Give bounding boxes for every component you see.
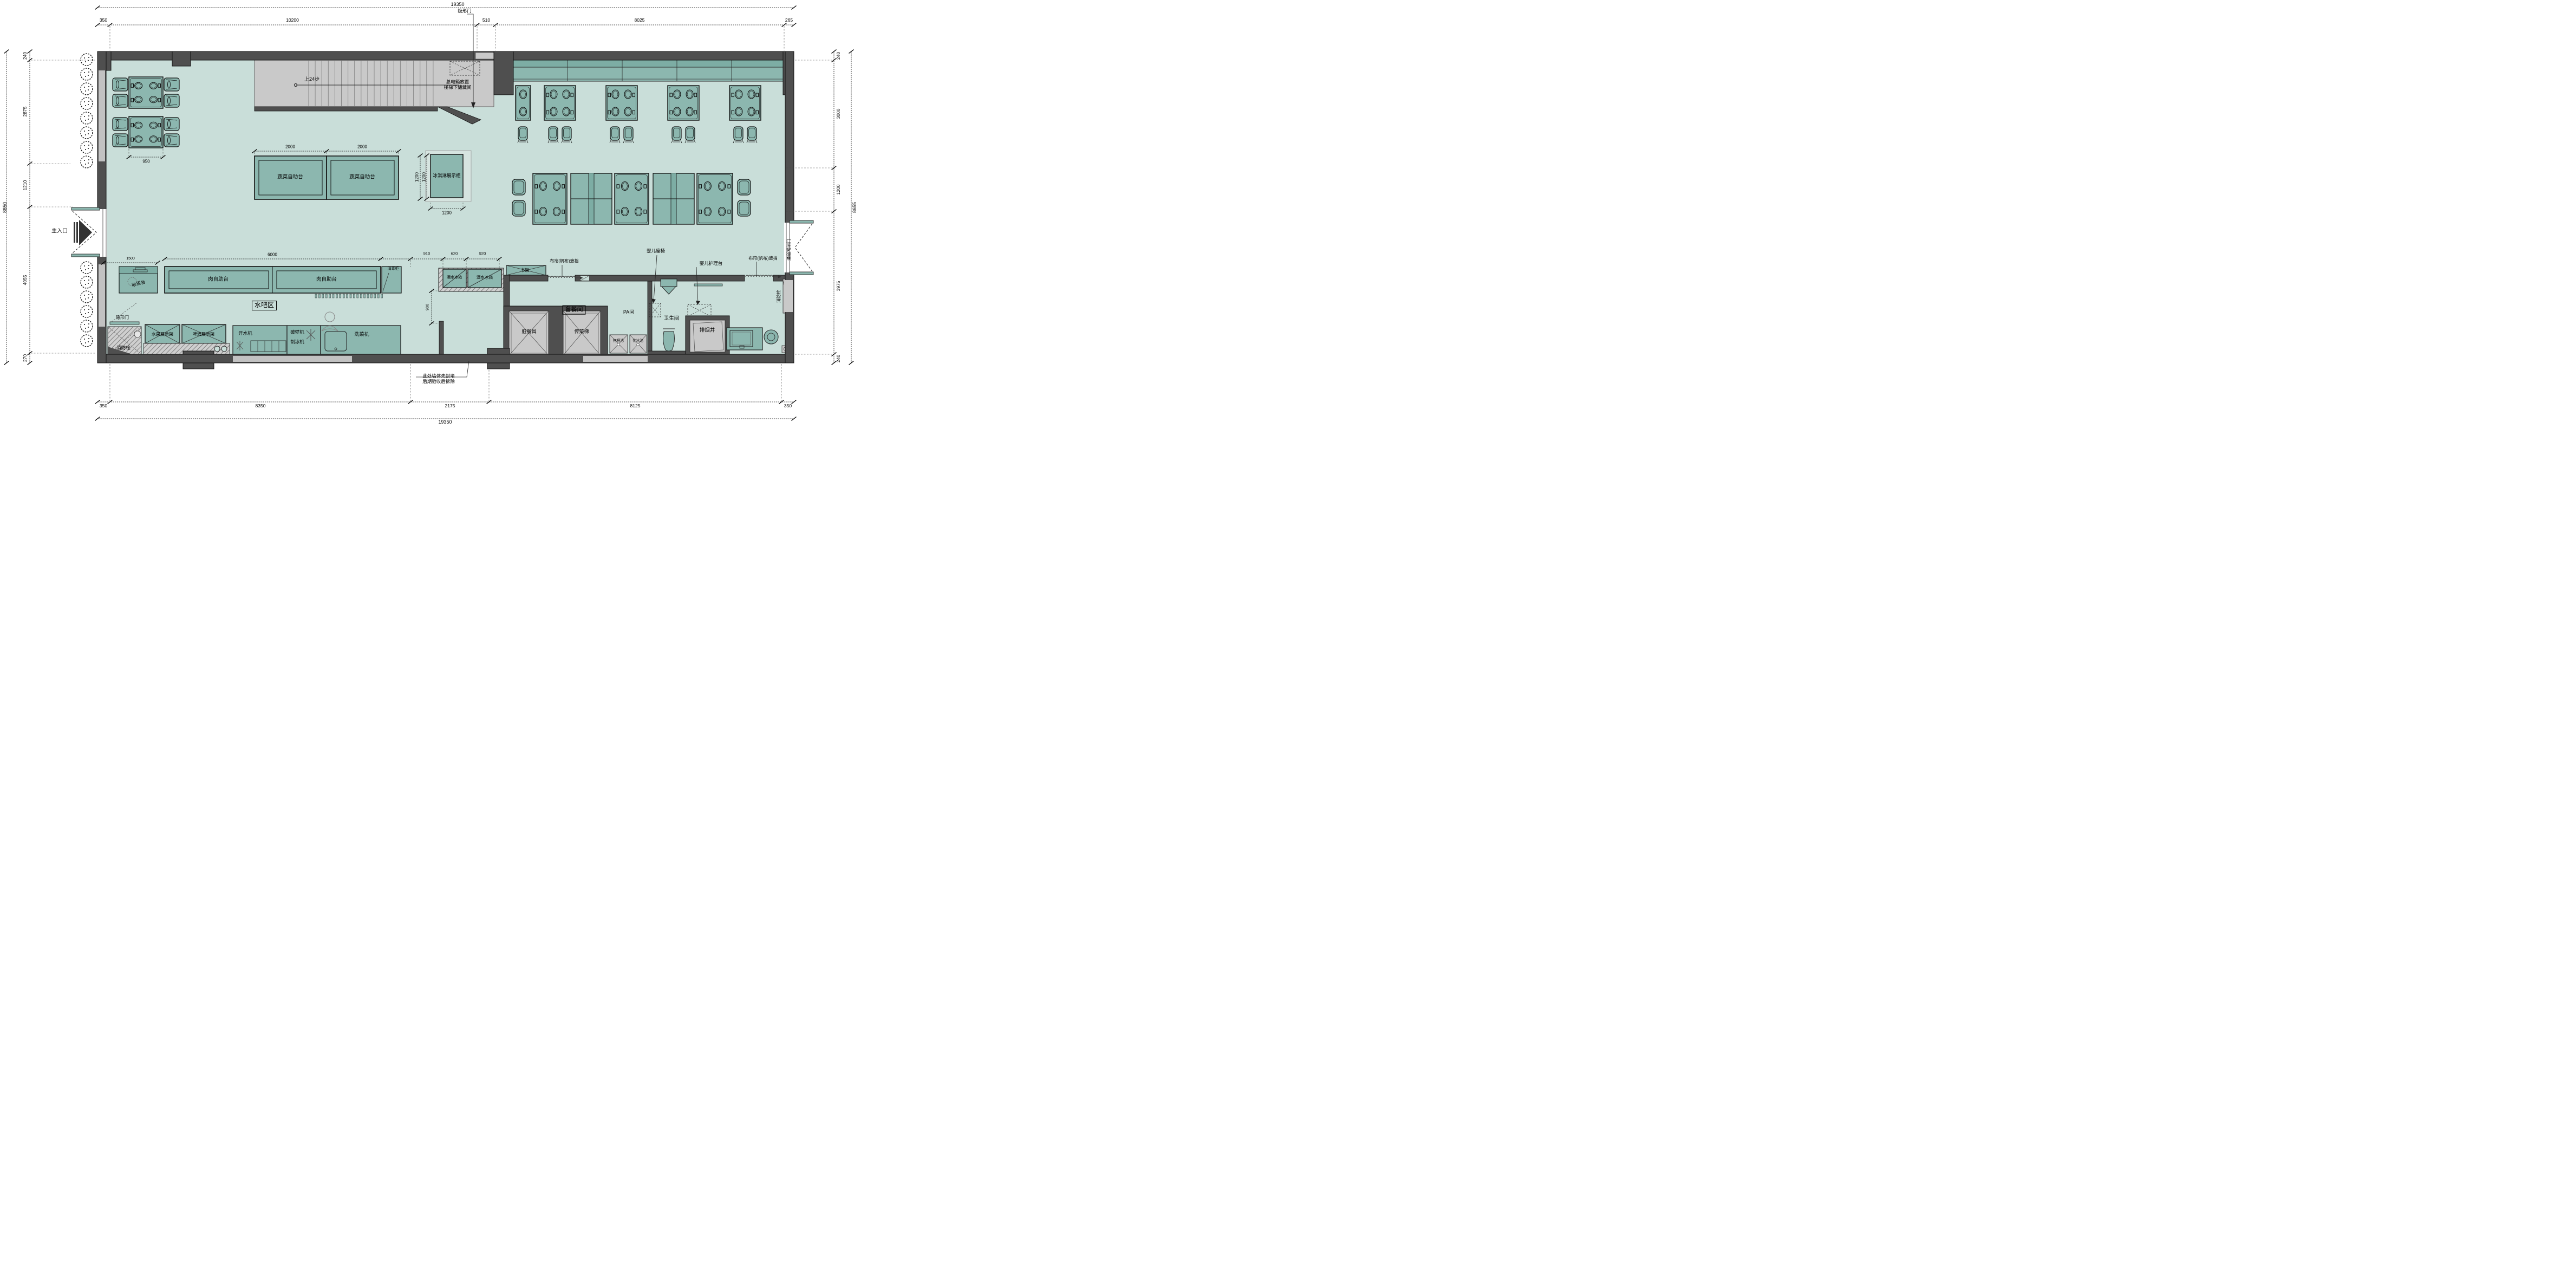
mop-sink-label: 拖把池 (613, 339, 624, 342)
blender-label: 破壁机 (290, 330, 304, 335)
beer-rack-label: 啤酒展示架 (193, 332, 214, 336)
stairs-up-label: 上24步 (304, 76, 319, 82)
dim-top-8025-label: 8025 (635, 18, 645, 23)
hidden-door-top-label: 隐形门 (458, 9, 472, 14)
toilet-room-label: 卫生间 (664, 316, 680, 322)
dim-920-label: 920 (479, 252, 486, 257)
dim-2000-b-label: 2000 (357, 144, 367, 149)
baby-care-shelf (694, 284, 722, 286)
dirty-dishes-label: 脏餐具 (521, 329, 536, 334)
tree-icon (81, 320, 93, 332)
dim-right-240a-label: 240 (836, 52, 842, 60)
tree-icon (81, 291, 93, 303)
door-leaf (790, 220, 813, 223)
tree-icon (81, 335, 93, 347)
tree-icon (81, 262, 93, 274)
banquette-bench (513, 60, 786, 81)
curtain-mid-label: 布帘(帆布)遮挡 (550, 258, 578, 263)
pa-room-label: PA间 (623, 309, 634, 315)
dim-bot-8350-label: 8350 (256, 404, 266, 409)
meat-buffet-2-label: 肉自助台 (316, 277, 337, 283)
veg-washer-box (321, 326, 401, 354)
tree-icon (81, 306, 93, 317)
dim-1200-v1-label: 1200 (414, 172, 419, 182)
dim-left-1210-label: 1210 (23, 180, 28, 191)
disinfect-cabinet-label: 消毒柜 (388, 267, 399, 271)
water-bar-zone-label: 水吧区 (252, 301, 277, 310)
tree-icon (81, 127, 93, 139)
dim-6000-label: 6000 (268, 252, 277, 257)
entrance-arrow-icon (74, 222, 75, 243)
toilet-icon (663, 332, 675, 351)
dim-top-10200-label: 10200 (286, 18, 299, 23)
floor-plan-drawing (0, 0, 859, 427)
dim-left-4055-label: 4055 (23, 275, 28, 285)
dim-bot-350b-label: 350 (784, 404, 792, 409)
tree-icon (81, 112, 93, 124)
baby-seat-label: 婴儿座椅 (647, 249, 665, 254)
passage-door-label: 通道常闭门 (786, 239, 791, 261)
dim-910-label: 910 (423, 252, 431, 257)
tree-icon (81, 68, 93, 80)
food-lift-label: 传菜梯 (574, 329, 589, 334)
dim-right-240b-label: 240 (836, 355, 842, 362)
hidden-door-leaf (110, 322, 139, 324)
tree-icon (81, 83, 93, 95)
veg-washer-label: 洗菜机 (354, 332, 369, 337)
veg-buffet-1-label: 蔬菜自助台 (277, 175, 303, 181)
veg-buffet-counters (255, 156, 399, 199)
fire-hydrant-right-label: 消防栓 (776, 290, 781, 303)
dim-1200-ice-label: 1200 (442, 210, 452, 215)
drink-fridge-2-label: 酒水冰箱 (477, 276, 493, 281)
dim-bot-8125-label: 8125 (630, 404, 641, 409)
dim-1500-label: 1500 (126, 257, 135, 261)
dim-left-270-label: 270 (23, 354, 28, 362)
urinal-icon (661, 279, 677, 287)
dim-620-label: 620 (451, 252, 458, 257)
ice-melt-sink-label: 化冰池 (632, 339, 643, 342)
floor-plan: 19350350102005108025265隐形门上24步总电箱放置 楼梯下储… (0, 0, 859, 427)
tree-icon (81, 98, 93, 109)
dim-bot-350a-label: 350 (100, 404, 107, 409)
window-band (99, 264, 105, 327)
round-sink-icon (764, 330, 778, 344)
electric-note-label: 总电箱放置 楼梯下储藏间 (444, 80, 471, 90)
dim-top-overall-label: 19350 (451, 2, 464, 7)
dim-900-label: 900 (426, 304, 431, 311)
street-trees (81, 54, 93, 347)
dim-2000-a-label: 2000 (285, 144, 295, 149)
dim-right-3975-label: 3975 (836, 281, 842, 291)
dim-bot-overall-label: 19350 (438, 419, 452, 425)
wall-note-label: 此处墙体先封堵 后期验收后拆除 (422, 374, 455, 385)
dim-950-label: 950 (142, 159, 149, 164)
dim-top-350-label: 350 (100, 18, 107, 23)
dim-left-240-label: 240 (23, 52, 28, 60)
dim-top-265-label: 265 (785, 18, 793, 23)
dim-right-8655-label: 8655 (852, 202, 857, 213)
main-entrance-label: 主入口 (51, 228, 68, 235)
stub-partition (439, 321, 444, 355)
veg-buffet-2-label: 蔬菜自助台 (349, 175, 375, 181)
dim-bot-2175-label: 2175 (445, 404, 455, 409)
hidden-door-left-label: 隐形门 (116, 315, 129, 320)
ice-cream-display-label: 冰淇淋展示柜 (433, 173, 460, 179)
drink-fridge-1-label: 酒水冰箱 (447, 276, 462, 280)
dim-left-8650-label: 8650 (2, 202, 8, 213)
curtain-right-label: 布帘(帆布)遮挡 (748, 256, 777, 261)
baby-care-table-label: 婴儿护理台 (700, 261, 723, 267)
tree-icon (81, 141, 93, 153)
smoke-shaft-label: 排烟井 (700, 328, 715, 334)
prep-room-label: 备餐间 (563, 306, 586, 315)
dim-left-2875-label: 2875 (23, 107, 28, 117)
water-boiler-label: 开水机 (238, 331, 252, 336)
tree-icon (81, 156, 93, 168)
bookshelf-label: 书架 (520, 268, 529, 272)
tree-icon (81, 54, 93, 66)
hidden-door-gap (475, 53, 494, 59)
ice-maker-label: 制冰机 (290, 340, 304, 345)
fire-hydrant-left-label: 消防栓 (116, 346, 131, 351)
fruit-rack-label: 水果展示架 (152, 332, 173, 336)
dim-right-3000-label: 3000 (836, 109, 842, 119)
meat-buffet-counters (165, 267, 401, 298)
dim-1200-v2-label: 1200 (421, 172, 426, 182)
meat-buffet-1-label: 肉自助台 (208, 277, 229, 283)
dim-right-1200-label: 1200 (836, 185, 842, 195)
dim-top-510-label: 510 (482, 18, 490, 23)
cashier-counter (119, 267, 158, 293)
entrance-opening (96, 209, 107, 257)
door-leaf (790, 272, 813, 275)
window-band (99, 70, 105, 161)
door-leaf (71, 254, 100, 257)
stair-rail-wall (255, 107, 438, 111)
tree-icon (81, 276, 93, 288)
door-leaf (71, 207, 100, 210)
